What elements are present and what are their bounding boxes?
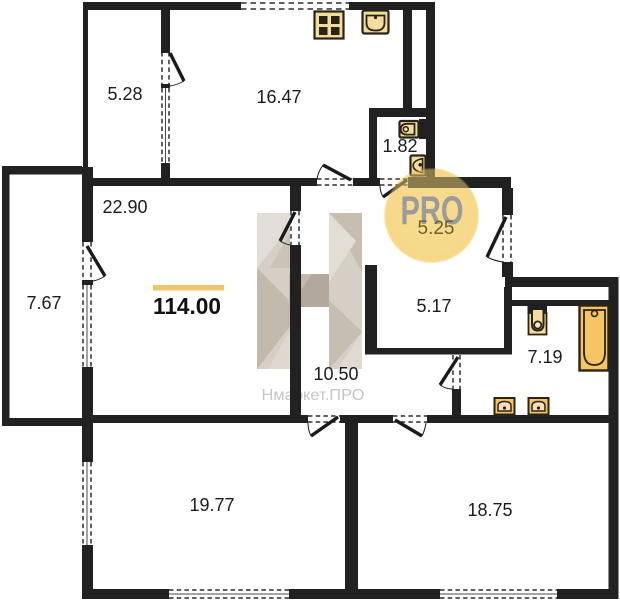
- svg-text:Нмаркет.ПРО: Нмаркет.ПРО: [262, 387, 365, 404]
- svg-text:7.67: 7.67: [26, 293, 61, 313]
- svg-text:10.50: 10.50: [313, 364, 358, 384]
- svg-text:1.82: 1.82: [382, 136, 417, 156]
- svg-text:5.28: 5.28: [107, 84, 142, 104]
- svg-text:16.47: 16.47: [256, 87, 301, 107]
- svg-text:5.25: 5.25: [418, 218, 455, 239]
- svg-text:18.75: 18.75: [467, 500, 512, 520]
- svg-text:7.19: 7.19: [527, 347, 562, 367]
- svg-text:114.00: 114.00: [153, 293, 221, 319]
- svg-text:5.17: 5.17: [416, 296, 451, 316]
- svg-text:19.77: 19.77: [189, 495, 234, 515]
- svg-text:22.90: 22.90: [102, 197, 147, 217]
